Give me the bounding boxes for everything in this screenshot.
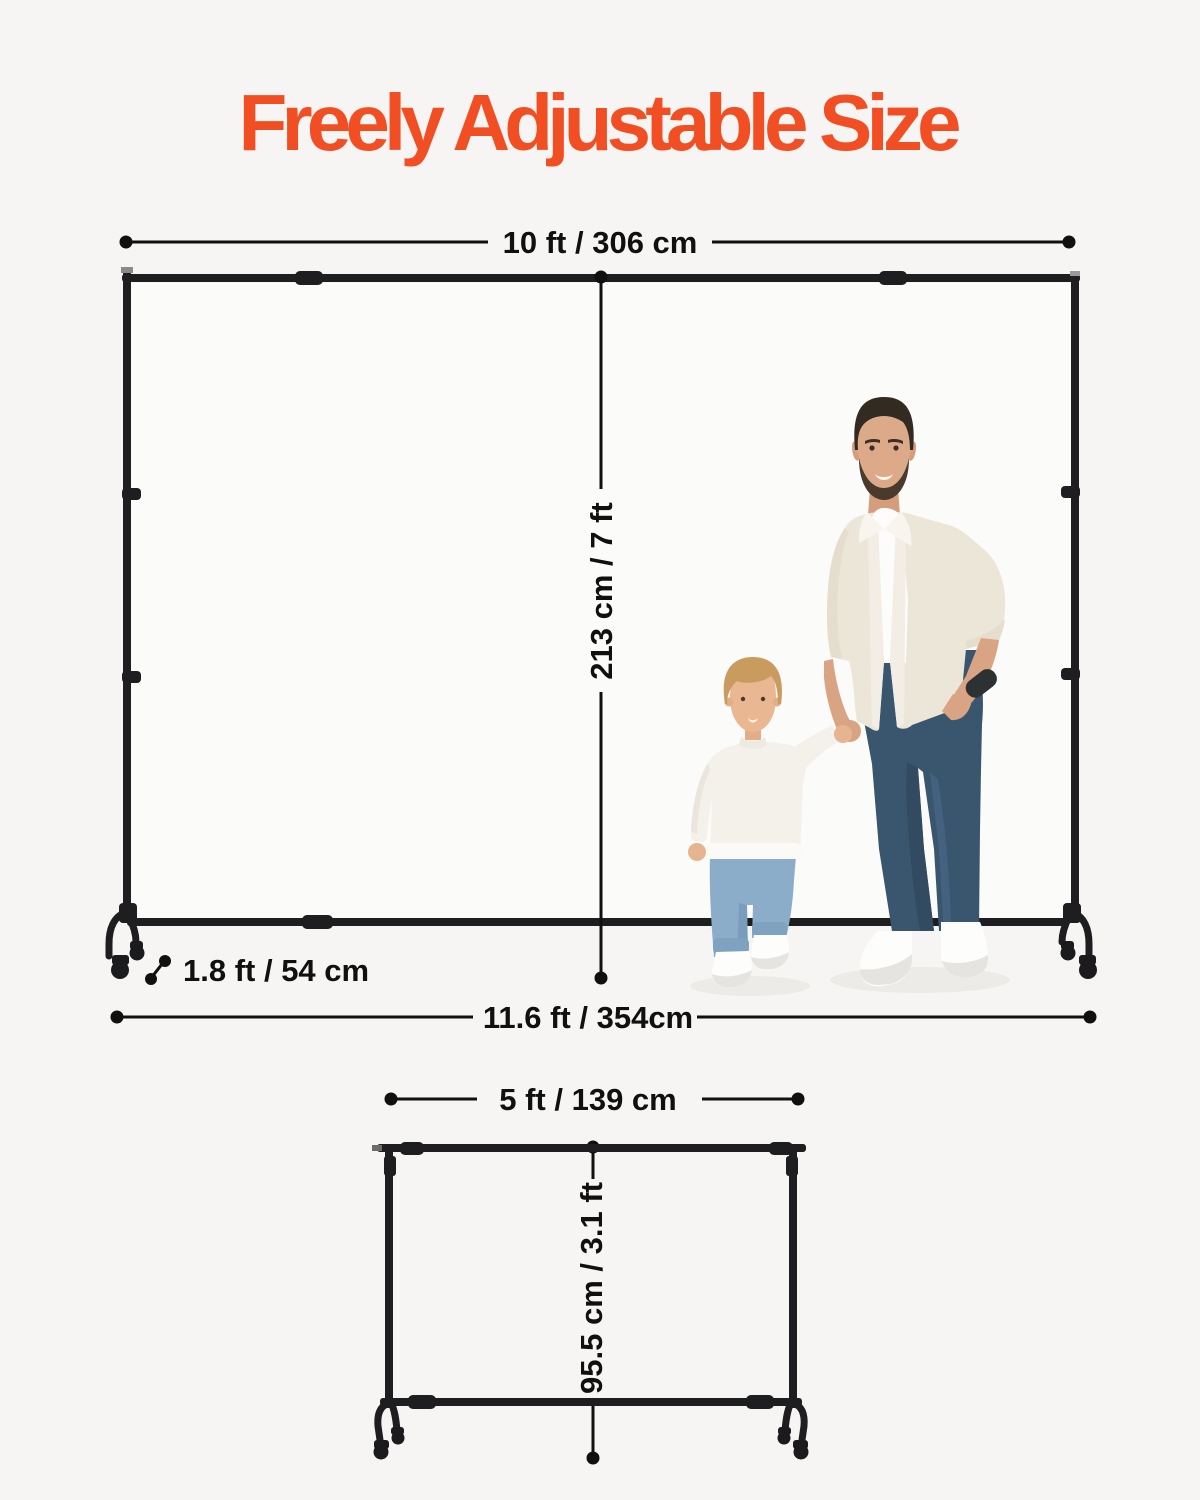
svg-text:10 ft / 306 cm: 10 ft / 306 cm bbox=[503, 225, 698, 260]
svg-text:1.8 ft / 54 cm: 1.8 ft / 54 cm bbox=[183, 953, 369, 988]
svg-text:Freely Adjustable Size: Freely Adjustable Size bbox=[239, 78, 962, 167]
svg-text:213 cm / 7 ft: 213 cm / 7 ft bbox=[584, 502, 619, 679]
svg-text:5 ft / 139 cm: 5 ft / 139 cm bbox=[499, 1082, 676, 1117]
svg-text:95.5 cm / 3.1 ft: 95.5 cm / 3.1 ft bbox=[574, 1182, 609, 1394]
svg-text:11.6 ft / 354cm: 11.6 ft / 354cm bbox=[483, 1000, 693, 1035]
